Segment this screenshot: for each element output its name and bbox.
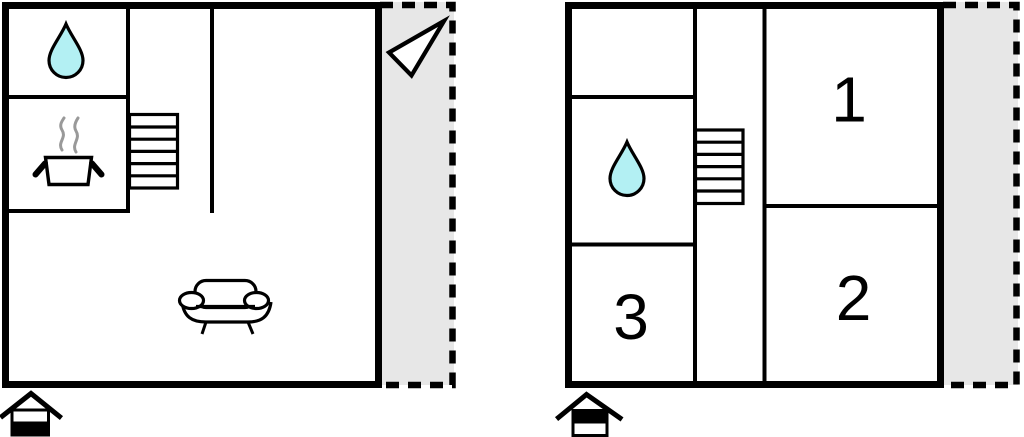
- floor-plan-canvas: 1 2 3: [0, 0, 1024, 437]
- pot-body: [46, 158, 92, 185]
- balcony-area: [943, 2, 1018, 385]
- first-floor-plan: 1 2 3: [559, 2, 1019, 436]
- ground-floor-plan: [3, 2, 455, 435]
- room-1-label: 1: [831, 64, 867, 136]
- house-filled-level-top: [573, 411, 607, 424]
- house-ground-floor-icon: [3, 394, 60, 436]
- staircase-icon: [130, 115, 178, 189]
- house-first-floor-icon: [559, 395, 621, 436]
- house-filled-level-bottom: [12, 422, 49, 436]
- room-2-label: 2: [836, 262, 872, 334]
- room-3-label: 3: [613, 281, 649, 353]
- floor-plans-drawing: 1 2 3: [0, 0, 1024, 437]
- balcony-fill: [943, 2, 1018, 385]
- staircase-icon: [696, 130, 744, 204]
